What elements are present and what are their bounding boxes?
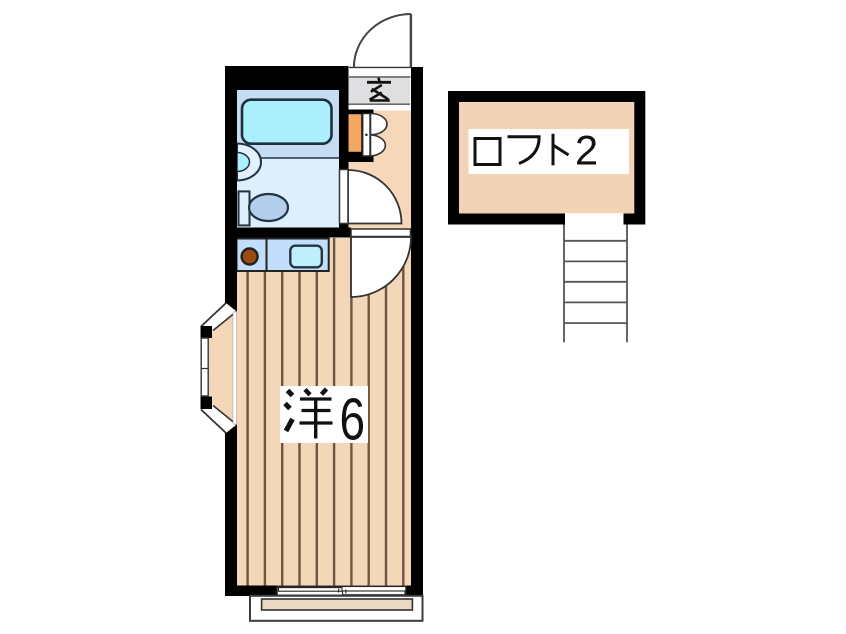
svg-text:6: 6: [339, 387, 365, 453]
svg-text:2: 2: [575, 127, 598, 174]
